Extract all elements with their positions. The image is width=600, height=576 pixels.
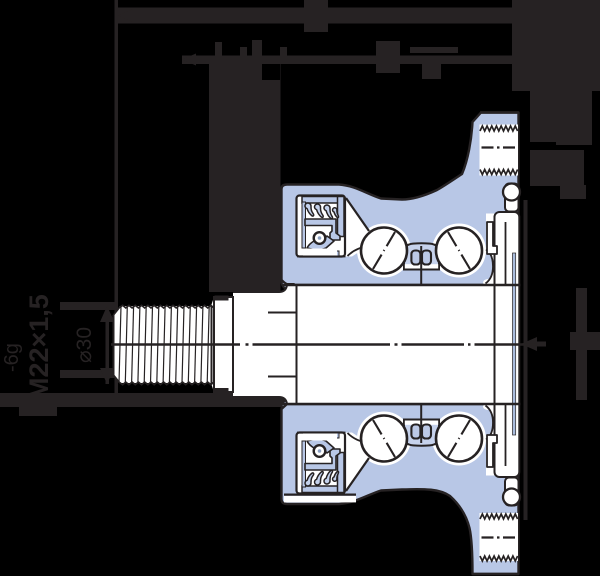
svg-text:-6g: -6g: [1, 343, 23, 372]
svg-text:M22×1,5: M22×1,5: [24, 294, 54, 400]
svg-text:⌀30: ⌀30: [73, 327, 96, 363]
